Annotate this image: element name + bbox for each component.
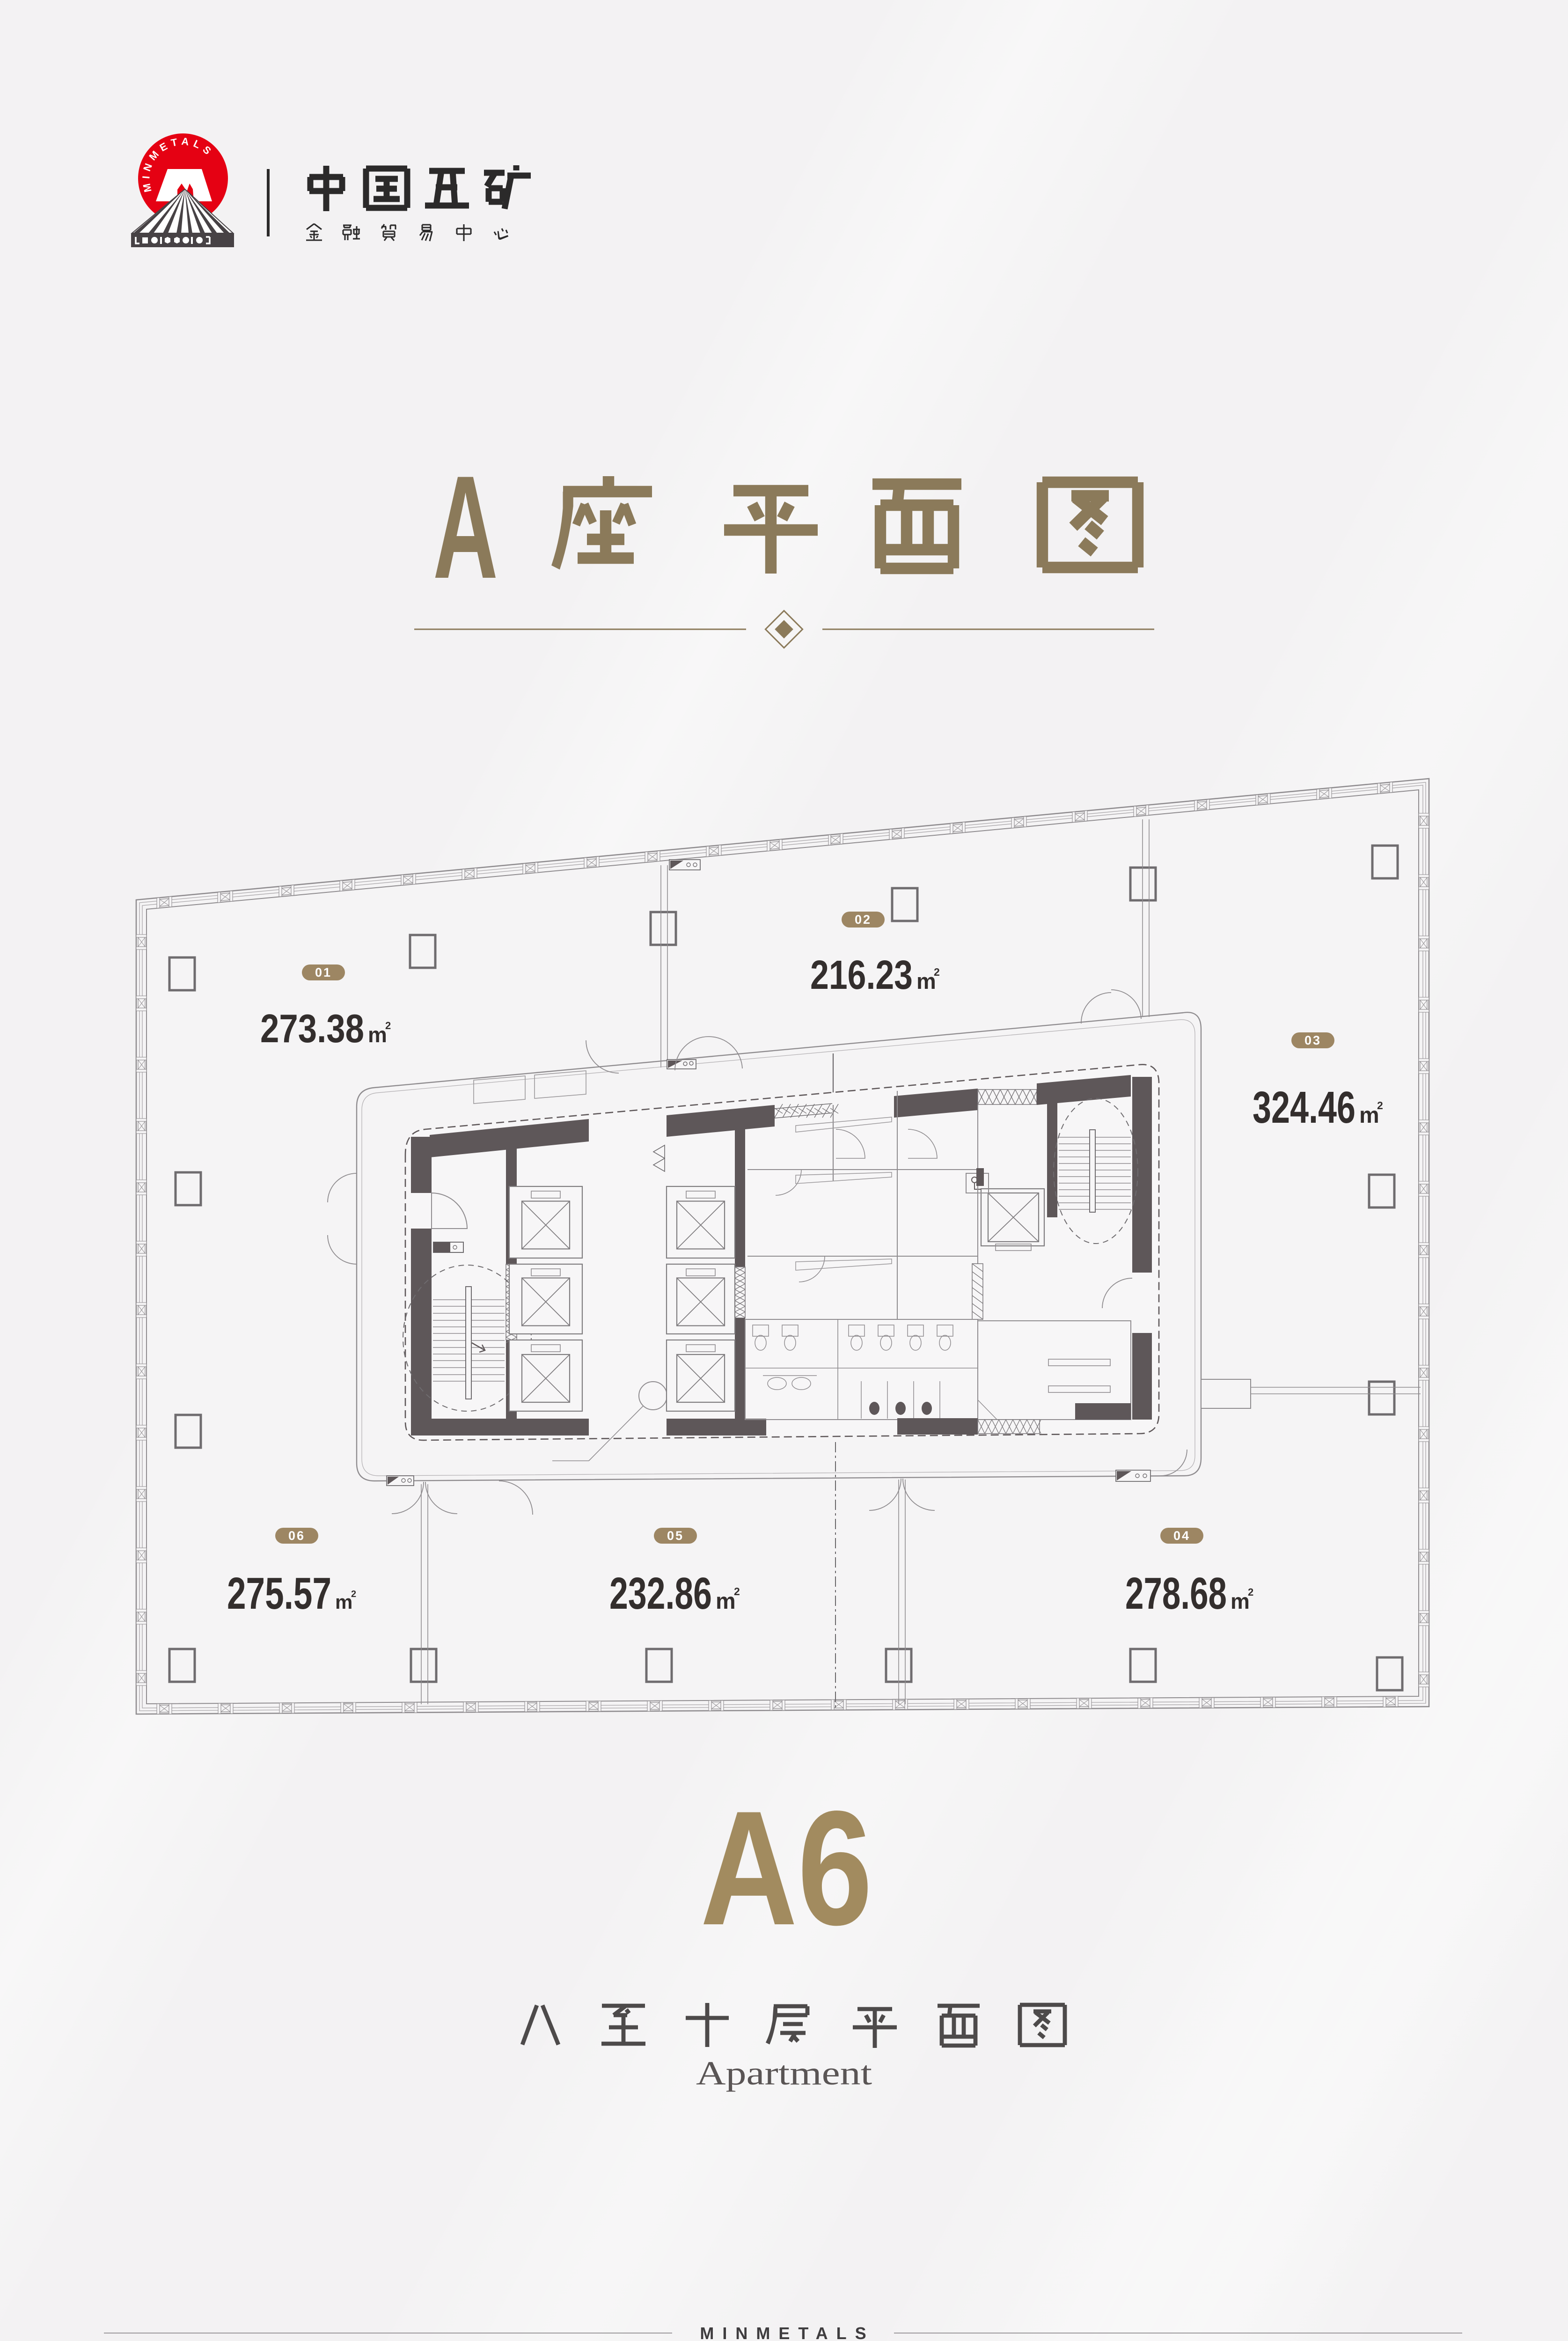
svg-text:273.38: 273.38: [260, 1007, 364, 1051]
svg-text:06: 06: [288, 1529, 305, 1543]
svg-text:Apartment: Apartment: [696, 2054, 872, 2092]
svg-text:324.46: 324.46: [1253, 1082, 1356, 1133]
svg-text:278.68: 278.68: [1125, 1568, 1227, 1619]
svg-text:MINMETALS: MINMETALS: [700, 2324, 874, 2341]
svg-text:05: 05: [667, 1529, 684, 1543]
svg-text:2: 2: [934, 966, 940, 978]
svg-text:2: 2: [1377, 1099, 1383, 1112]
svg-text:04: 04: [1173, 1529, 1190, 1543]
svg-text:2: 2: [351, 1589, 356, 1599]
svg-text:A6: A6: [700, 1777, 872, 1959]
svg-text:2: 2: [1248, 1586, 1253, 1598]
svg-text:m: m: [1359, 1103, 1379, 1128]
svg-text:2: 2: [385, 1020, 391, 1031]
svg-text:m: m: [335, 1591, 352, 1613]
svg-text:A: A: [433, 446, 498, 609]
svg-text:m: m: [368, 1023, 387, 1047]
svg-text:m: m: [716, 1589, 736, 1614]
svg-text:275.57: 275.57: [227, 1568, 331, 1619]
svg-text:01: 01: [315, 965, 332, 979]
svg-text:232.86: 232.86: [609, 1568, 712, 1619]
svg-text:03: 03: [1304, 1033, 1321, 1047]
svg-text:2: 2: [734, 1585, 740, 1597]
svg-text:m: m: [1231, 1589, 1250, 1613]
svg-text:02: 02: [855, 913, 872, 927]
svg-text:m: m: [916, 969, 936, 994]
svg-text:216.23: 216.23: [810, 952, 913, 998]
